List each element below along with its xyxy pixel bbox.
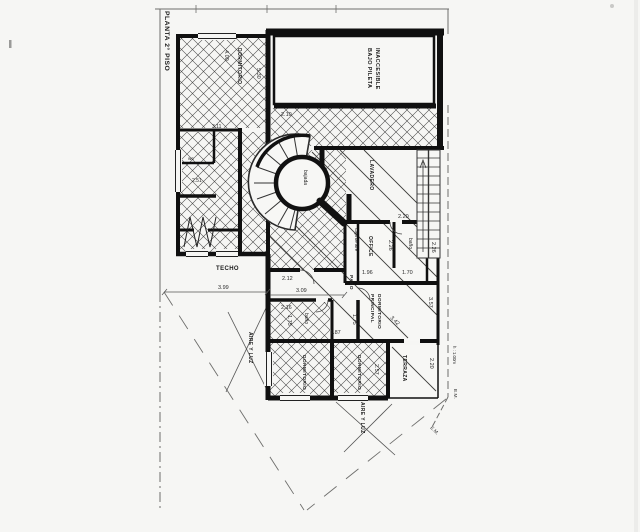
label-banio-mid: baño — [303, 313, 309, 324]
dim-1-87: 1.87 — [330, 330, 341, 336]
floor-plan-drawing: PLANTA 2° PISO DORMITORIO 4.00 5.30 BAJO… — [0, 0, 640, 532]
label-lavadero: LAVADERO — [368, 160, 374, 191]
dim-1-70: 1.70 — [402, 270, 413, 276]
dimension-lines — [162, 289, 347, 298]
label-dormitorio-b1: DORMITORIO — [301, 355, 307, 390]
dorm-ppal-line2: PRINCIPAL — [369, 294, 375, 323]
scanned-plan-page: PLANTA 2° PISO DORMITORIO 4.00 5.30 BAJO… — [0, 0, 640, 532]
dorm-ppal-line1: DORMITORIO — [376, 294, 382, 329]
label-dormitorio-b2: DORMITORIO — [356, 355, 362, 390]
dim-3-99: 3.99 — [218, 285, 229, 291]
dim-1-96: 1.96 — [362, 270, 373, 276]
dim-2-57: 2.57 — [373, 364, 379, 375]
label-dormitorio-upper: DORMITORIO — [236, 48, 242, 84]
note-em-2: E.M. — [429, 425, 440, 436]
label-paso: PASO — [348, 275, 354, 290]
window — [264, 352, 273, 386]
dim-2-20-a: 2.20 — [398, 214, 409, 220]
plan-title: PLANTA 2° PISO — [163, 11, 171, 71]
window — [186, 249, 208, 258]
label-wc: wc — [188, 157, 194, 162]
dim-2-26-a: 2.26 — [387, 240, 393, 251]
dim-2-12: 2.12 — [282, 276, 293, 282]
window — [198, 31, 236, 40]
bajo-pileta-line1: BAJO PILETA — [366, 48, 372, 88]
dim-1-75-a: 1.75 — [286, 315, 292, 326]
window — [216, 249, 238, 258]
note-h-1-00m: h : 1.00m — [452, 346, 457, 364]
dim-2-10: 2.10 — [281, 112, 292, 118]
label-caja-de-aire: Caja de aire — [354, 228, 359, 252]
dim-3-57: 3.57 — [427, 297, 433, 308]
window — [280, 393, 310, 402]
dim-2-51: 2.51 — [192, 178, 202, 184]
dim-3-11: 3.11 — [212, 124, 222, 130]
label-aire-luz-bottom: AIRE Y LUZ — [359, 402, 365, 434]
dim-3-09: 3.09 — [296, 288, 307, 294]
label-bajada: bajada — [302, 170, 308, 185]
dim-4-00: 4.00 — [223, 50, 229, 61]
label-techo: TECHO — [216, 266, 239, 272]
label-banio-top: baño — [407, 238, 413, 249]
label-aire-luz-left: AIRE Y LUZ — [247, 332, 253, 364]
dim-2-26-b: 2.26 — [430, 242, 436, 253]
window — [338, 393, 368, 402]
window — [173, 150, 182, 192]
note-em-1: E.M. — [452, 389, 458, 399]
dim-2-20-b: 2.20 — [428, 358, 434, 369]
label-terraza: TERRAZA — [401, 355, 407, 382]
dim-1-75-b: 1.75 — [351, 314, 357, 325]
bajo-pileta-line2: INACCESIBLE — [374, 48, 380, 90]
label-office: OFFICE — [367, 236, 373, 257]
dim-5-30: 5.30 — [255, 68, 261, 79]
dim-2-16: 2.16 — [281, 305, 292, 311]
